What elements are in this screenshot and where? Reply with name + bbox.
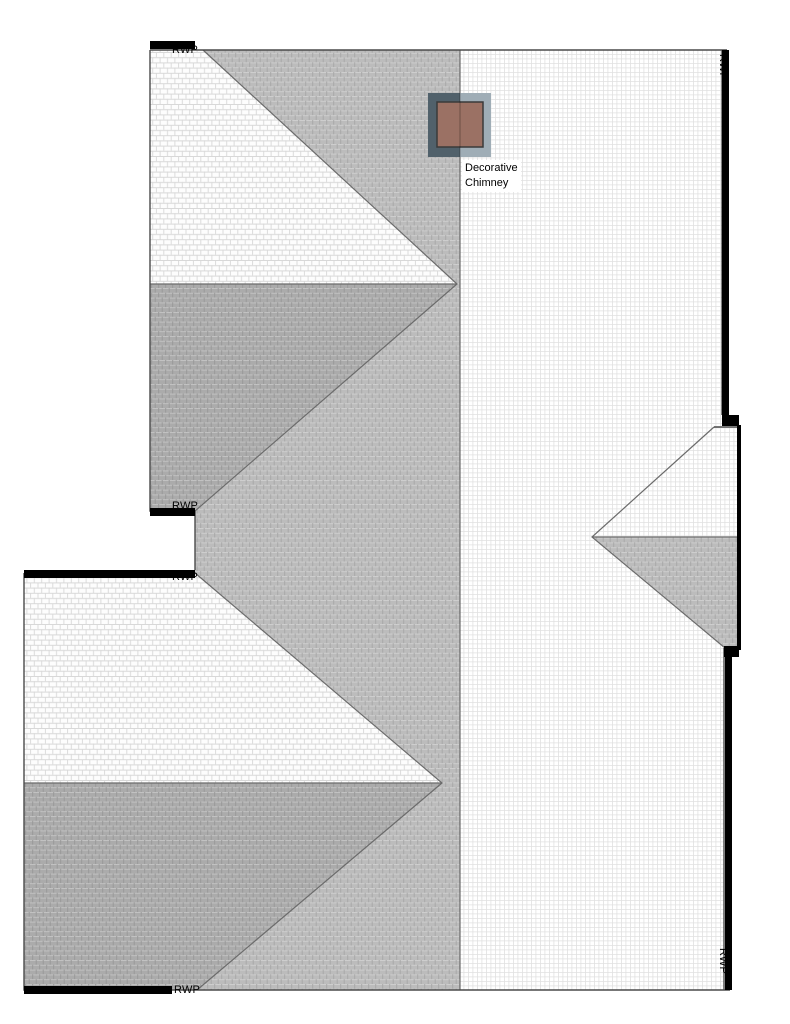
roof-plan-canvas: RWP RWP RWP RWP RWP RWP Decorative Chimn…: [0, 0, 790, 1024]
gutter-bar-right-upper: [722, 50, 729, 415]
gutter-bar-notch-lower: [24, 570, 195, 578]
rwp-label-top-left: RWP: [172, 44, 198, 56]
gutter-bar-bottom-left: [24, 986, 172, 994]
rwp-label-right-top: RWP: [717, 54, 729, 80]
gutter-bar-right-wing-top: [722, 415, 739, 426]
roof-plan-drawing: [0, 0, 790, 1024]
chimney: [428, 93, 491, 157]
chimney-annotation: Decorative Chimney: [462, 160, 521, 192]
chimney-annotation-line2: Chimney: [465, 176, 518, 191]
rwp-label-right-bottom: RWP: [717, 948, 729, 974]
chimney-annotation-line1: Decorative: [465, 161, 518, 176]
rwp-label-bottom-left: RWP: [174, 984, 200, 996]
gutter-bar-right-lower: [725, 652, 732, 990]
rwp-label-notch-upper: RWP: [172, 500, 198, 512]
rwp-label-notch-lower: RWP: [172, 571, 198, 583]
